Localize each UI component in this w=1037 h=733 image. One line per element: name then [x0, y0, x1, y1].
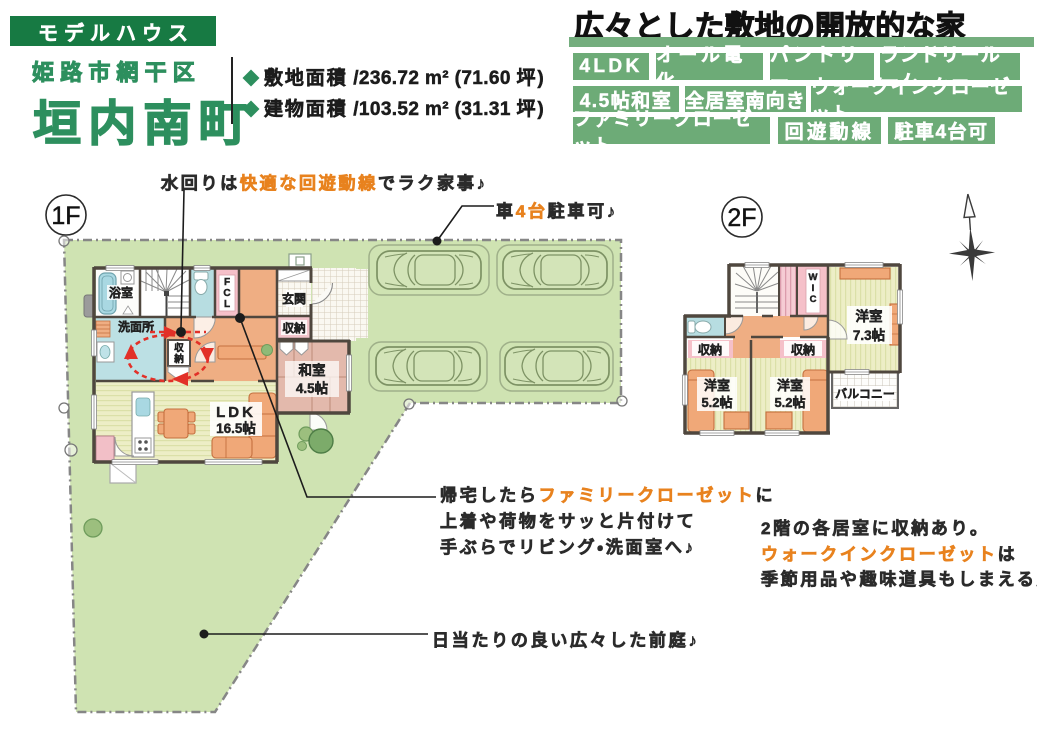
- svg-text:C: C: [223, 288, 230, 299]
- svg-text:洗面所: 洗面所: [118, 319, 154, 334]
- svg-text:LDK: LDK: [216, 404, 256, 421]
- svg-text:5.2帖: 5.2帖: [774, 395, 805, 410]
- svg-text:収納: 収納: [791, 342, 815, 357]
- svg-text:7.3帖: 7.3帖: [853, 327, 886, 343]
- svg-text:玄関: 玄関: [282, 291, 306, 306]
- svg-text:収納: 収納: [283, 321, 306, 335]
- svg-text:W: W: [809, 272, 818, 283]
- svg-text:バルコニー: バルコニー: [835, 387, 895, 401]
- svg-text:2F: 2F: [727, 204, 756, 232]
- svg-text:C: C: [810, 294, 817, 305]
- svg-text:F: F: [224, 277, 230, 288]
- svg-text:浴室: 浴室: [109, 285, 133, 300]
- svg-text:洋室: 洋室: [856, 308, 884, 324]
- svg-text:1F: 1F: [51, 202, 80, 230]
- svg-text:16.5帖: 16.5帖: [216, 420, 256, 436]
- svg-text:収: 収: [174, 342, 184, 354]
- svg-text:収納: 収納: [698, 342, 722, 357]
- svg-text:5.2帖: 5.2帖: [701, 395, 732, 410]
- svg-text:L: L: [224, 299, 230, 310]
- svg-text:4.5帖: 4.5帖: [296, 380, 329, 396]
- svg-text:和室: 和室: [299, 362, 326, 378]
- svg-text:洋室: 洋室: [704, 378, 730, 393]
- svg-text:納: 納: [173, 353, 184, 365]
- svg-text:洋室: 洋室: [777, 378, 803, 393]
- svg-text:I: I: [812, 283, 815, 294]
